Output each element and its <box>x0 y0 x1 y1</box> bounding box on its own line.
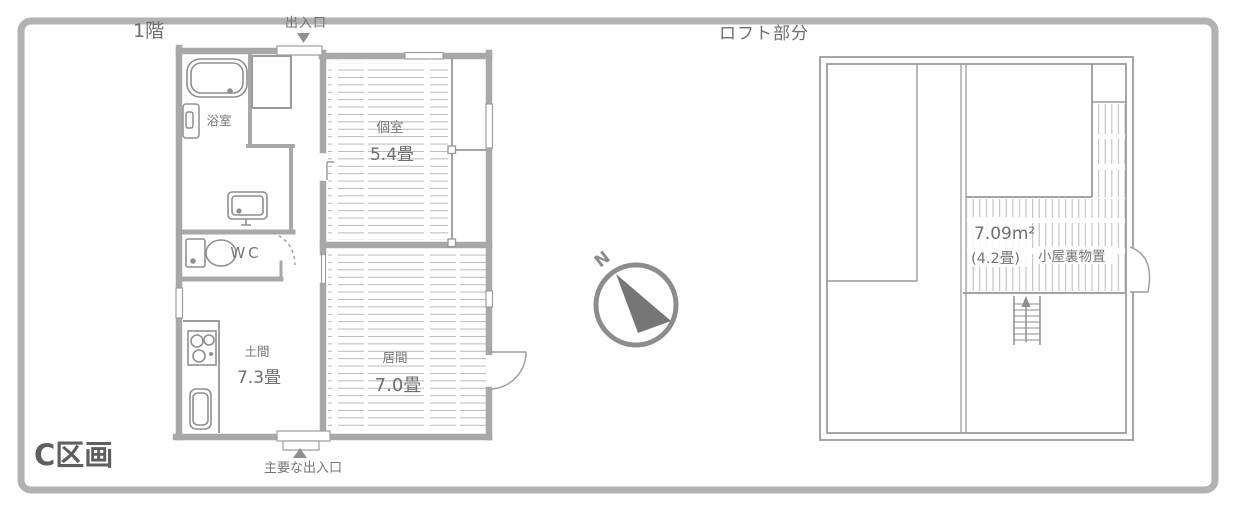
first-floor-plan: 1階 出入口 浴室 個室 5.4畳 WC 土間 7.3畳 居間 7.0畳 主要な… <box>133 16 526 476</box>
entrance-down-arrow-icon <box>297 33 310 43</box>
floorplan-panel: 1階 出入口 浴室 個室 5.4畳 WC 土間 7.3畳 居間 7.0畳 主要な… <box>0 0 1238 508</box>
toilet-icon <box>186 239 236 267</box>
bathtub-icon <box>187 59 247 97</box>
floorplan-drawing: 1階 出入口 浴室 個室 5.4畳 WC 土間 7.3畳 居間 7.0畳 主要な… <box>0 0 1238 508</box>
doma-size: 7.3畳 <box>237 368 281 388</box>
first-floor-title: 1階 <box>133 20 164 42</box>
washbasin-icon <box>228 192 267 225</box>
loft-title: ロフト部分 <box>719 24 809 44</box>
ladder-up-arrow-icon <box>1022 296 1031 307</box>
living-room-label: 居間 <box>382 350 407 365</box>
bath-label: 浴室 <box>206 113 231 128</box>
kitchen-sink-icon <box>190 389 211 429</box>
doma-label: 土間 <box>244 344 269 359</box>
wc-door-arc <box>273 233 295 265</box>
compass-needle <box>616 274 671 333</box>
bath-sink-icon <box>183 104 199 138</box>
section-label: C区画 <box>34 438 113 472</box>
storage-area-tatami: (4.2畳) <box>971 251 1020 267</box>
living-room-door <box>489 352 526 389</box>
loft-plan: ロフト部分 7.09m² (4.2畳) 小屋裏物置 <box>719 24 1150 440</box>
stove-icon <box>188 331 216 365</box>
top-entrance-label: 出入口 <box>285 16 327 31</box>
compass-icon: N <box>591 248 676 345</box>
storage-area-sqm: 7.09m² <box>974 224 1035 244</box>
private-room-label: 個室 <box>377 119 404 136</box>
ladder-icon <box>1014 296 1040 345</box>
main-entrance-label: 主要な出入口 <box>264 461 342 476</box>
living-room-size: 7.0畳 <box>375 375 422 396</box>
loft-door-flap <box>1130 247 1150 292</box>
entry-closet <box>252 56 291 108</box>
compass-north-label: N <box>591 248 615 273</box>
private-room-size: 5.4畳 <box>370 145 414 165</box>
wc-label: WC <box>230 244 261 262</box>
storage-name-label: 小屋裏物置 <box>1038 249 1106 265</box>
